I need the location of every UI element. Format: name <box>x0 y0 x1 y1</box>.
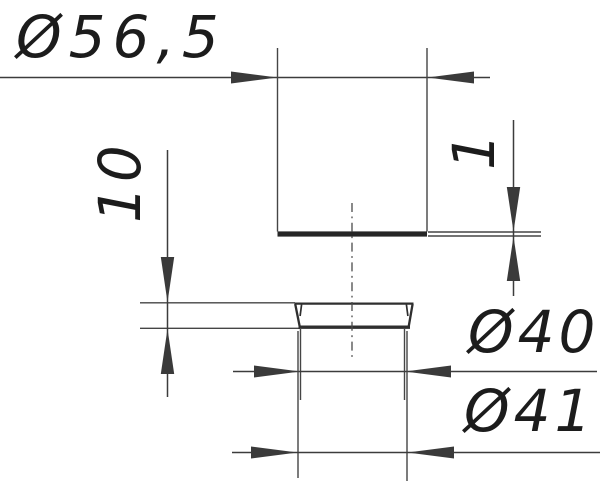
arrowhead-right-icon <box>231 72 278 84</box>
arrowhead-down-icon <box>161 257 174 302</box>
dimension-ring-height: 10 <box>86 141 300 397</box>
dimension-label-upper-diameter: Ø40 <box>466 298 599 366</box>
arrowhead-left-icon <box>408 447 455 459</box>
part-flange-side-view <box>278 231 428 236</box>
dimension-label-flange-diameter: Ø56,5 <box>14 3 226 71</box>
arrowhead-right-icon <box>251 447 298 459</box>
arrowhead-left-icon <box>405 366 451 378</box>
ring-right-wall-inner <box>406 305 408 317</box>
arrowhead-right-icon <box>254 366 300 378</box>
part-ring-side-view <box>295 203 414 358</box>
dimension-flange-diameter: Ø56,5 <box>0 3 490 232</box>
dimension-label-flange-thickness: 1 <box>440 133 508 170</box>
ring-left-wall-inner <box>300 305 302 317</box>
arrowhead-down-icon <box>507 187 520 232</box>
ring-right-wall-outer <box>409 304 413 326</box>
technical-drawing: Ø56,5 1 10 <box>0 0 600 482</box>
dimension-flange-thickness: 1 <box>428 120 541 296</box>
arrowhead-up-icon <box>161 329 174 374</box>
flange-section-edge <box>278 231 428 236</box>
dimension-label-lower-diameter: Ø41 <box>462 377 595 445</box>
dimension-label-ring-height: 10 <box>86 141 154 223</box>
drawing-canvas: Ø56,5 1 10 <box>0 0 600 482</box>
ring-left-wall-outer <box>295 304 299 326</box>
arrowhead-left-icon <box>428 72 475 84</box>
arrowhead-up-icon <box>507 236 520 281</box>
